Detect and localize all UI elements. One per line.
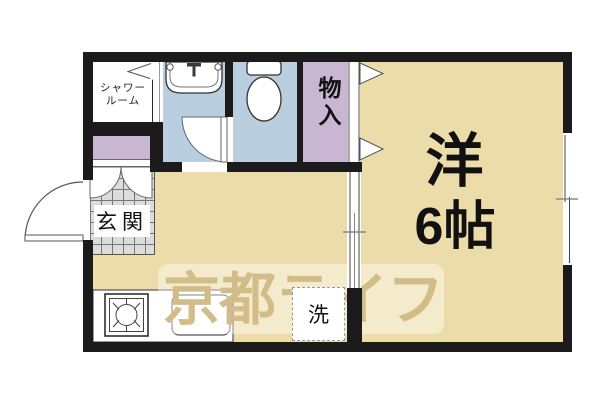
shower-room-label-line2: ルーム — [93, 95, 153, 108]
wall-bottom — [83, 342, 572, 352]
entrance-closet — [90, 136, 152, 159]
floorplan-canvas: 京都ライフ — [0, 0, 600, 400]
wall-right-lower — [563, 265, 572, 352]
wall-partition-lower — [347, 288, 362, 342]
wall-toilet-right — [297, 62, 303, 162]
wall-right-upper — [563, 52, 572, 133]
entrance-closet-doors — [90, 159, 152, 167]
western-room-type-label: 洋 — [362, 132, 547, 192]
washbasin-room-floor — [163, 62, 225, 162]
wall-left-upper — [83, 52, 93, 180]
closet-label: 物入 — [311, 76, 345, 130]
toilet-room-floor — [233, 62, 297, 162]
wall-under-shower — [83, 122, 158, 136]
entrance-door-arc — [25, 182, 83, 241]
western-room-size-label: 6帖 — [355, 198, 555, 256]
wall-wetrooms-bottom-right — [227, 162, 362, 172]
wall-wetrooms-bottom-left — [150, 162, 182, 172]
wall-washroom-toilet — [225, 62, 233, 117]
wall-left-lower — [83, 240, 93, 352]
wall-top — [83, 52, 572, 62]
shower-room-label-line1: シャワー — [93, 82, 153, 95]
shower-room-label: シャワー ルーム — [93, 82, 153, 108]
laundry-label: 洗 — [292, 299, 345, 329]
entrance-label: 玄関 — [94, 205, 150, 237]
